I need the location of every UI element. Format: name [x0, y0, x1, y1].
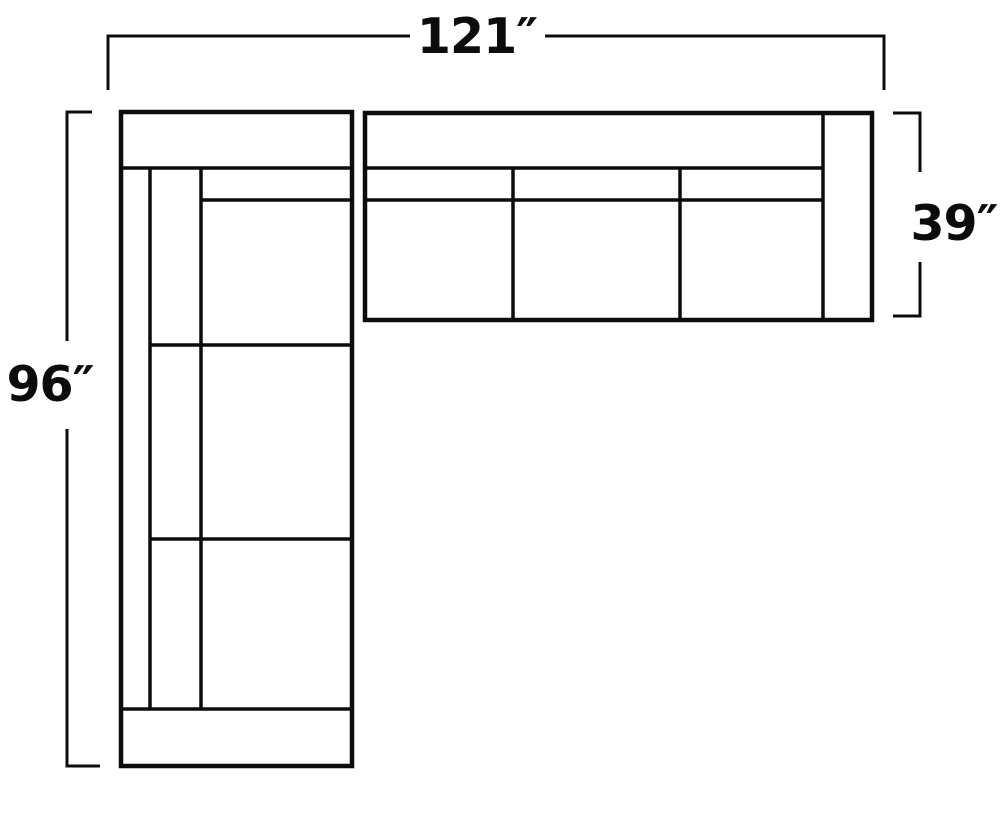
sofa-piece: [365, 113, 872, 320]
sofa-piece-outline: [365, 113, 872, 320]
diagram-canvas: 121″ 96″ 39″: [0, 0, 1000, 821]
width-dimension: 121″: [108, 8, 884, 90]
corner-piece-outline: [121, 112, 352, 766]
sectional-sofa-diagram: 121″ 96″ 39″: [0, 0, 1000, 821]
corner-chaise-piece: [121, 112, 352, 766]
sofa-depth-dimension: 39″: [893, 113, 998, 316]
width-dimension-label: 121″: [417, 8, 537, 65]
sofa-depth-dimension-label: 39″: [910, 195, 997, 252]
depth-dimension-bracket: [67, 112, 100, 766]
depth-dimension: 96″: [6, 112, 100, 766]
depth-dimension-label: 96″: [6, 356, 93, 413]
